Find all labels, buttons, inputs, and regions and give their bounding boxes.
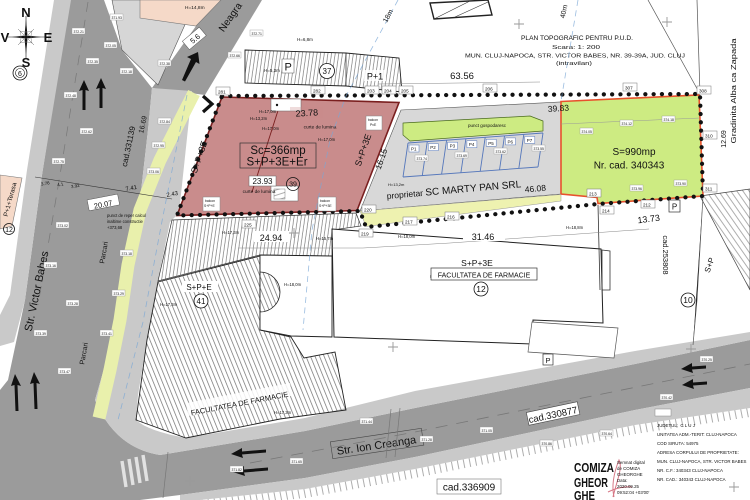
- svg-text:+373,68: +373,68: [107, 225, 123, 230]
- svg-text:311: 311: [705, 187, 713, 192]
- svg-text:6: 6: [18, 71, 22, 78]
- svg-text:37: 37: [323, 67, 332, 76]
- svg-text:P6: P6: [508, 139, 514, 144]
- svg-text:S+P+E: S+P+E: [186, 283, 211, 292]
- svg-text:372.18: 372.18: [122, 70, 132, 74]
- svg-text:310: 310: [705, 134, 713, 139]
- svg-text:374.18: 374.18: [664, 118, 674, 122]
- svg-text:H=14,8m: H=14,8m: [185, 5, 205, 11]
- svg-text:de COMIZA: de COMIZA: [617, 466, 640, 471]
- svg-text:373.16: 373.16: [46, 264, 56, 268]
- svg-text:H=18,0m: H=18,0m: [284, 282, 302, 287]
- svg-text:12: 12: [5, 227, 13, 234]
- svg-text:372.35: 372.35: [88, 60, 98, 64]
- svg-text:GHE: GHE: [574, 489, 595, 500]
- svg-text:P7: P7: [527, 138, 533, 143]
- svg-text:09:52:04 +03'00': 09:52:04 +03'00': [617, 490, 649, 495]
- svg-text:39: 39: [289, 182, 297, 189]
- svg-text:371.05: 371.05: [482, 429, 492, 433]
- svg-text:371.93: 371.93: [112, 16, 122, 20]
- svg-text:373.39: 373.39: [36, 332, 46, 336]
- svg-text:P: P: [545, 356, 550, 365]
- svg-text:282: 282: [313, 89, 321, 94]
- svg-text:H=18,8m: H=18,8m: [566, 225, 584, 230]
- svg-text:P+1: P+1: [367, 72, 383, 82]
- svg-text:balcon: balcon: [320, 199, 330, 203]
- svg-text:373.18: 373.18: [122, 252, 132, 256]
- svg-text:373.55: 373.55: [534, 147, 544, 151]
- svg-text:S+P+E: S+P+E: [204, 204, 215, 208]
- svg-text:372.95: 372.95: [154, 144, 164, 148]
- svg-text:372.71: 372.71: [252, 32, 262, 36]
- svg-text:GHEORGHE: GHEORGHE: [617, 472, 643, 477]
- svg-text:373.90: 373.90: [676, 182, 686, 186]
- svg-text:N: N: [21, 5, 30, 20]
- svg-text:370.25: 370.25: [702, 358, 712, 362]
- svg-text:MUN. CLUJ-NAPOCA, STR. VICTOR: MUN. CLUJ-NAPOCA, STR. VICTOR BABES: [657, 459, 747, 464]
- svg-text:373.74: 373.74: [417, 157, 427, 161]
- svg-text:23.78: 23.78: [295, 107, 318, 118]
- svg-text:H=15,7m: H=15,7m: [316, 236, 334, 241]
- svg-text:46.08: 46.08: [524, 183, 546, 195]
- svg-text:373.28: 373.28: [68, 302, 78, 306]
- svg-text:Nr. cad. 340343: Nr. cad. 340343: [594, 161, 665, 172]
- svg-text:S+P+3E: S+P+3E: [461, 258, 493, 268]
- svg-text:371.28: 371.28: [422, 438, 432, 442]
- svg-text:P: P: [672, 203, 677, 212]
- svg-text:balcon: balcon: [205, 199, 215, 203]
- svg-text:Semnat digital: Semnat digital: [617, 460, 645, 465]
- svg-text:H=5,3m: H=5,3m: [264, 68, 280, 73]
- svg-text:216: 216: [447, 215, 455, 220]
- svg-text:curte de lumina: curte de lumina: [243, 189, 276, 195]
- svg-text:balcon: balcon: [368, 118, 378, 122]
- svg-text:370.86: 370.86: [542, 442, 552, 446]
- svg-text:372.38: 372.38: [160, 62, 170, 66]
- svg-text:203: 203: [367, 89, 375, 94]
- svg-text:cad.336909: cad.336909: [443, 483, 496, 494]
- svg-text:12.69: 12.69: [721, 130, 728, 148]
- svg-text:204: 204: [384, 89, 392, 94]
- svg-text:S+P+3E: S+P+3E: [319, 204, 332, 208]
- svg-text:GHEOR: GHEOR: [574, 476, 608, 490]
- svg-text:(intravilan): (intravilan): [556, 61, 592, 67]
- svg-text:307: 307: [625, 86, 633, 91]
- svg-text:Sc=366mp: Sc=366mp: [250, 145, 305, 157]
- svg-text:225: 225: [244, 223, 252, 228]
- svg-text:H=17,0m: H=17,0m: [262, 126, 280, 131]
- svg-text:281: 281: [218, 90, 226, 95]
- svg-text:S+P+3E+Er: S+P+3E+Er: [246, 157, 307, 169]
- svg-text:COD SIRUTA: 54975: COD SIRUTA: 54975: [657, 441, 699, 446]
- svg-text:373.29: 373.29: [114, 292, 124, 296]
- svg-text:371.82: 371.82: [232, 468, 242, 472]
- svg-text:374.12: 374.12: [622, 122, 632, 126]
- svg-text:205: 205: [401, 89, 409, 94]
- svg-text:UNITATEA ADM.-TERIT: CLUJ-NAPO: UNITATEA ADM.-TERIT: CLUJ-NAPOCA: [657, 432, 737, 437]
- svg-text:372.62: 372.62: [82, 130, 92, 134]
- svg-text:ADRESA CORPULUI DE PROPRIETATE: ADRESA CORPULUI DE PROPRIETATE:: [657, 450, 739, 455]
- svg-text:219: 219: [361, 232, 369, 237]
- svg-text:372.75: 372.75: [54, 160, 64, 164]
- svg-text:PvE: PvE: [370, 123, 377, 127]
- svg-text:373.06: 373.06: [149, 170, 159, 174]
- svg-text:P4: P4: [469, 142, 475, 147]
- svg-text:23.93: 23.93: [252, 177, 273, 186]
- svg-text:P1: P1: [411, 147, 417, 152]
- svg-text:S: S: [22, 55, 31, 70]
- svg-text:cad.253808: cad.253808: [661, 235, 670, 274]
- svg-text:P3: P3: [450, 144, 456, 149]
- svg-text:372.48: 372.48: [66, 94, 76, 98]
- svg-text:370.64: 370.64: [602, 432, 612, 436]
- svg-text:punct de reper calcul: punct de reper calcul: [107, 213, 146, 218]
- svg-text:373.47: 373.47: [60, 370, 70, 374]
- svg-text:373.62: 373.62: [496, 150, 506, 154]
- svg-text:curte de lumina: curte de lumina: [304, 125, 337, 131]
- svg-text:Scara: 1: 200: Scara: 1: 200: [552, 45, 600, 51]
- svg-text:213: 213: [589, 192, 597, 197]
- svg-text:63.56: 63.56: [450, 71, 474, 82]
- svg-text:Gradinita Alba ca Zapada: Gradinita Alba ca Zapada: [729, 37, 738, 143]
- svg-text:212: 212: [643, 203, 651, 208]
- svg-text:NR. CAD.: 340343 CLUJ-NAPOCA: NR. CAD.: 340343 CLUJ-NAPOCA: [657, 477, 726, 482]
- svg-text:P: P: [285, 62, 292, 74]
- svg-text:S=990mp: S=990mp: [612, 147, 656, 158]
- svg-text:COMIZA: COMIZA: [574, 461, 614, 475]
- svg-text:H=17,0m: H=17,0m: [259, 109, 277, 114]
- svg-text:PLAN TOPOGRAFIC PENTRU P.U.D.: PLAN TOPOGRAFIC PENTRU P.U.D.: [521, 35, 633, 42]
- svg-text:373.41: 373.41: [102, 332, 112, 336]
- svg-text:H=13,2m: H=13,2m: [250, 116, 268, 121]
- svg-text:MUN. CLUJ-NAPOCA, STR. VICTOR: MUN. CLUJ-NAPOCA, STR. VICTOR BABES, NR.…: [465, 54, 685, 60]
- svg-text:374.05: 374.05: [582, 130, 592, 134]
- svg-text:308: 308: [699, 89, 707, 94]
- svg-text:206: 206: [485, 87, 493, 92]
- svg-text:FACULTATEA DE FARMACIE: FACULTATEA DE FARMACIE: [438, 273, 531, 280]
- svg-text:H=17,3m: H=17,3m: [160, 302, 178, 307]
- svg-text:372.66: 372.66: [230, 54, 240, 58]
- svg-text:Data:: Data:: [617, 478, 628, 483]
- svg-text:31.46: 31.46: [472, 232, 495, 242]
- svg-text:10: 10: [683, 295, 693, 305]
- svg-text:inaltime constructie: inaltime constructie: [107, 219, 144, 224]
- svg-text:H=13,2m: H=13,2m: [388, 182, 405, 187]
- svg-text:372.84: 372.84: [160, 120, 170, 124]
- svg-text:JUDETUL: C L U J: JUDETUL: C L U J: [657, 423, 695, 428]
- svg-text:P5: P5: [488, 141, 494, 146]
- svg-text:NR. C.F.: 340343 CLUJ-NAPOCA: NR. C.F.: 340343 CLUJ-NAPOCA: [657, 468, 723, 473]
- svg-text:217: 217: [405, 220, 413, 225]
- svg-text:E: E: [44, 30, 53, 45]
- svg-text:V: V: [1, 30, 10, 45]
- svg-text:214: 214: [602, 209, 610, 214]
- svg-text:12: 12: [476, 284, 486, 294]
- svg-text:41: 41: [197, 297, 206, 306]
- svg-text:373.96: 373.96: [632, 187, 642, 191]
- svg-text:39.83: 39.83: [547, 103, 569, 114]
- svg-text:373.02: 373.02: [58, 224, 68, 228]
- svg-text:371.44: 371.44: [362, 420, 372, 424]
- svg-text:H=17,3m: H=17,3m: [222, 230, 240, 235]
- svg-text:220: 220: [364, 208, 372, 213]
- svg-text:H=17,3m: H=17,3m: [274, 410, 292, 415]
- svg-text:24.94: 24.94: [260, 233, 283, 243]
- svg-text:372.05: 372.05: [106, 44, 116, 48]
- svg-text:372.21: 372.21: [74, 30, 84, 34]
- svg-text:H=17,0m: H=17,0m: [318, 137, 336, 142]
- svg-text:371.65: 371.65: [292, 460, 302, 464]
- svg-text:H=6,8m: H=6,8m: [297, 37, 313, 42]
- svg-text:punct gospodaresc: punct gospodaresc: [468, 123, 507, 128]
- svg-text:2020.09.25: 2020.09.25: [617, 484, 640, 489]
- svg-text:P2: P2: [430, 145, 436, 150]
- svg-text:373.69: 373.69: [457, 154, 467, 158]
- svg-text:370.42: 370.42: [662, 396, 672, 400]
- svg-text:H=18,0m: H=18,0m: [398, 234, 416, 239]
